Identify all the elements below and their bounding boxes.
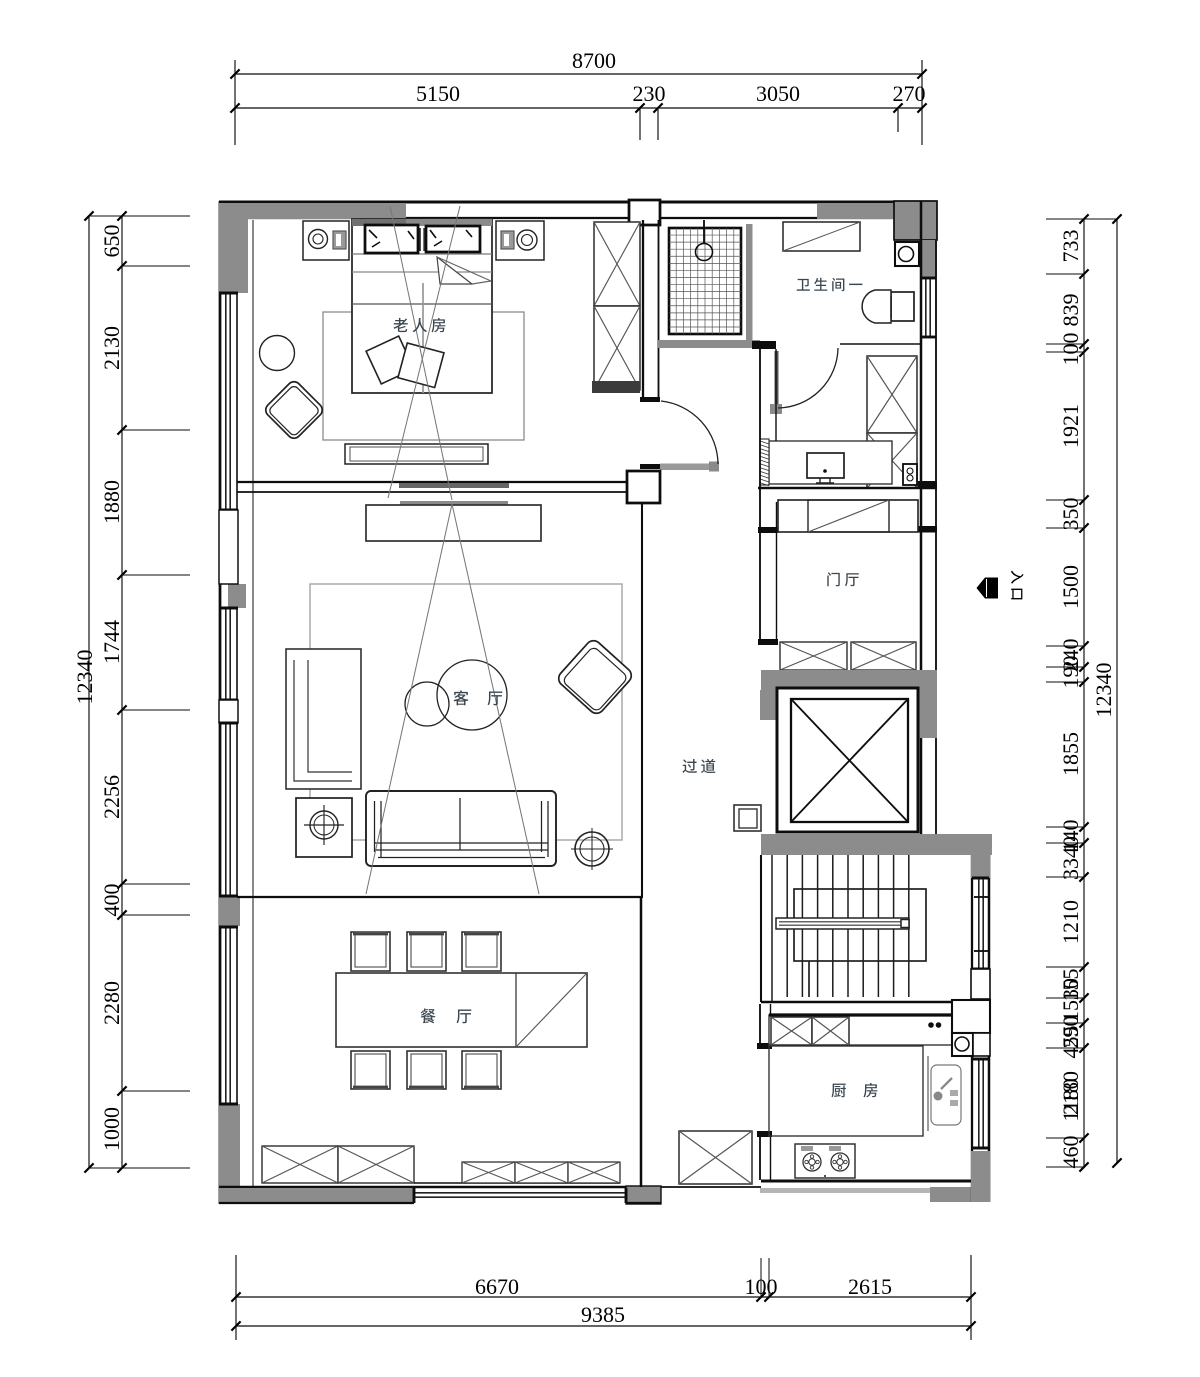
svg-text:1210: 1210 [1058, 900, 1083, 944]
svg-text:2130: 2130 [99, 326, 124, 370]
svg-text:839: 839 [1058, 294, 1083, 327]
svg-text:1880: 1880 [99, 480, 124, 524]
svg-text:1530: 1530 [1058, 978, 1083, 1022]
svg-text:190: 190 [1058, 656, 1083, 689]
svg-text:12340: 12340 [1091, 663, 1116, 718]
svg-text:3050: 3050 [756, 81, 800, 106]
svg-text:2256: 2256 [99, 775, 124, 819]
svg-text:1500: 1500 [1058, 565, 1083, 609]
svg-text:9385: 9385 [581, 1302, 625, 1327]
svg-text:733: 733 [1058, 230, 1083, 263]
svg-text:270: 270 [893, 81, 926, 106]
svg-text:2280: 2280 [99, 981, 124, 1025]
svg-text:460: 460 [1058, 1136, 1083, 1169]
svg-text:100: 100 [1058, 333, 1083, 366]
svg-text:400: 400 [99, 884, 124, 917]
svg-text:230: 230 [633, 81, 666, 106]
svg-text:12340: 12340 [72, 650, 97, 705]
svg-text:1000: 1000 [99, 1107, 124, 1151]
svg-text:455: 455 [1058, 1026, 1083, 1059]
svg-text:8700: 8700 [572, 48, 616, 73]
svg-text:1180: 1180 [1058, 1078, 1083, 1121]
svg-text:1921: 1921 [1058, 404, 1083, 448]
svg-text:6670: 6670 [475, 1274, 519, 1299]
svg-text:1744: 1744 [99, 620, 124, 664]
svg-text:100: 100 [745, 1274, 778, 1299]
svg-text:3340: 3340 [1058, 836, 1083, 880]
svg-text:650: 650 [99, 225, 124, 258]
svg-text:5150: 5150 [416, 81, 460, 106]
svg-text:350: 350 [1058, 498, 1083, 531]
svg-text:2615: 2615 [848, 1274, 892, 1299]
svg-text:1855: 1855 [1058, 732, 1083, 776]
